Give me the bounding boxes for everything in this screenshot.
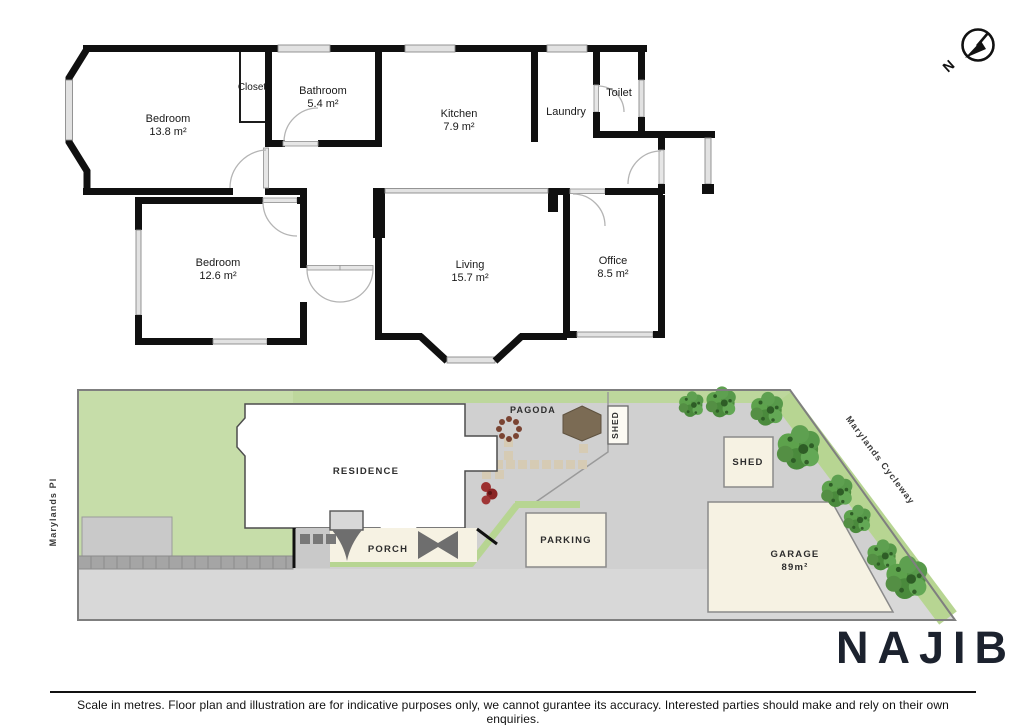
bay-window [66, 80, 73, 140]
concrete-pad [82, 517, 172, 558]
floor-plan: Bedroom 13.8 m² Closet Bathroom 5.4 m² K… [66, 45, 716, 363]
porch-label: PORCH [368, 544, 408, 555]
parking: PARKING [526, 513, 606, 567]
bedroom1-area: 13.8 m² [149, 126, 187, 138]
disclaimer-text: Scale in metres. Floor plan and illustra… [50, 691, 976, 725]
toilet-window [639, 80, 644, 117]
living-opening [385, 189, 548, 194]
office-area: 8.5 m² [597, 268, 629, 280]
living-area: 15.7 m² [451, 272, 489, 284]
plan-drawing: GARAGE 89m² SHED PARKING SHED PAGODA [0, 0, 1024, 725]
kitchen-area: 7.9 m² [443, 121, 475, 133]
living-label: Living [456, 259, 485, 271]
bedroom1-door [264, 148, 269, 188]
street-left-label: Marylands Pl [48, 478, 58, 547]
bedroom2-side-window [136, 230, 141, 315]
shed-large: SHED [724, 437, 773, 487]
bathroom-label: Bathroom [299, 85, 347, 97]
french-door-left [307, 266, 340, 271]
bathroom-area: 5.4 m² [307, 98, 339, 110]
porch-window [705, 138, 711, 184]
garage-label: GARAGE [771, 549, 820, 560]
pagoda-label: PAGODA [510, 405, 556, 415]
paver-path [78, 556, 293, 569]
bedroom1-label: Bedroom [146, 113, 191, 125]
compass: N [939, 30, 993, 76]
compass-needle-head [965, 41, 986, 58]
french-door-right [340, 266, 373, 271]
bedroom2-label: Bedroom [196, 257, 241, 269]
bathroom-window [278, 45, 330, 52]
floorplan-page: GARAGE 89m² SHED PARKING SHED PAGODA [0, 0, 1024, 725]
office-label: Office [599, 255, 628, 267]
bedroom2-area: 12.6 m² [199, 270, 237, 282]
office-window [577, 332, 653, 337]
site-plan: GARAGE 89m² SHED PARKING SHED PAGODA [48, 386, 955, 620]
porch-canopy [330, 511, 363, 530]
shed-small-label: SHED [610, 411, 620, 439]
shed-large-label: SHED [732, 457, 763, 468]
entry-door [659, 150, 664, 184]
residence: RESIDENCE [237, 404, 497, 537]
closet-label: Closet [238, 82, 267, 93]
office-door [570, 189, 605, 194]
bedroom2-door [263, 198, 297, 203]
bedroom2-bottom-window [213, 339, 267, 344]
garage-area-label: 89m² [782, 562, 809, 573]
kitchen-label: Kitchen [441, 108, 478, 120]
bathroom-door [283, 142, 318, 147]
laundry-window [547, 45, 587, 52]
shed-small: SHED [608, 406, 628, 444]
parking-label: PARKING [540, 535, 592, 546]
toilet-label: Toilet [606, 87, 632, 99]
laundry-label: Laundry [546, 106, 586, 118]
residence-label: RESIDENCE [333, 466, 399, 477]
kitchen-window [405, 45, 455, 52]
toilet-door [594, 85, 599, 112]
compass-north-label: N [939, 57, 957, 76]
agency-logo: NAJIB [826, 622, 1024, 674]
living-bay-window [447, 357, 495, 363]
